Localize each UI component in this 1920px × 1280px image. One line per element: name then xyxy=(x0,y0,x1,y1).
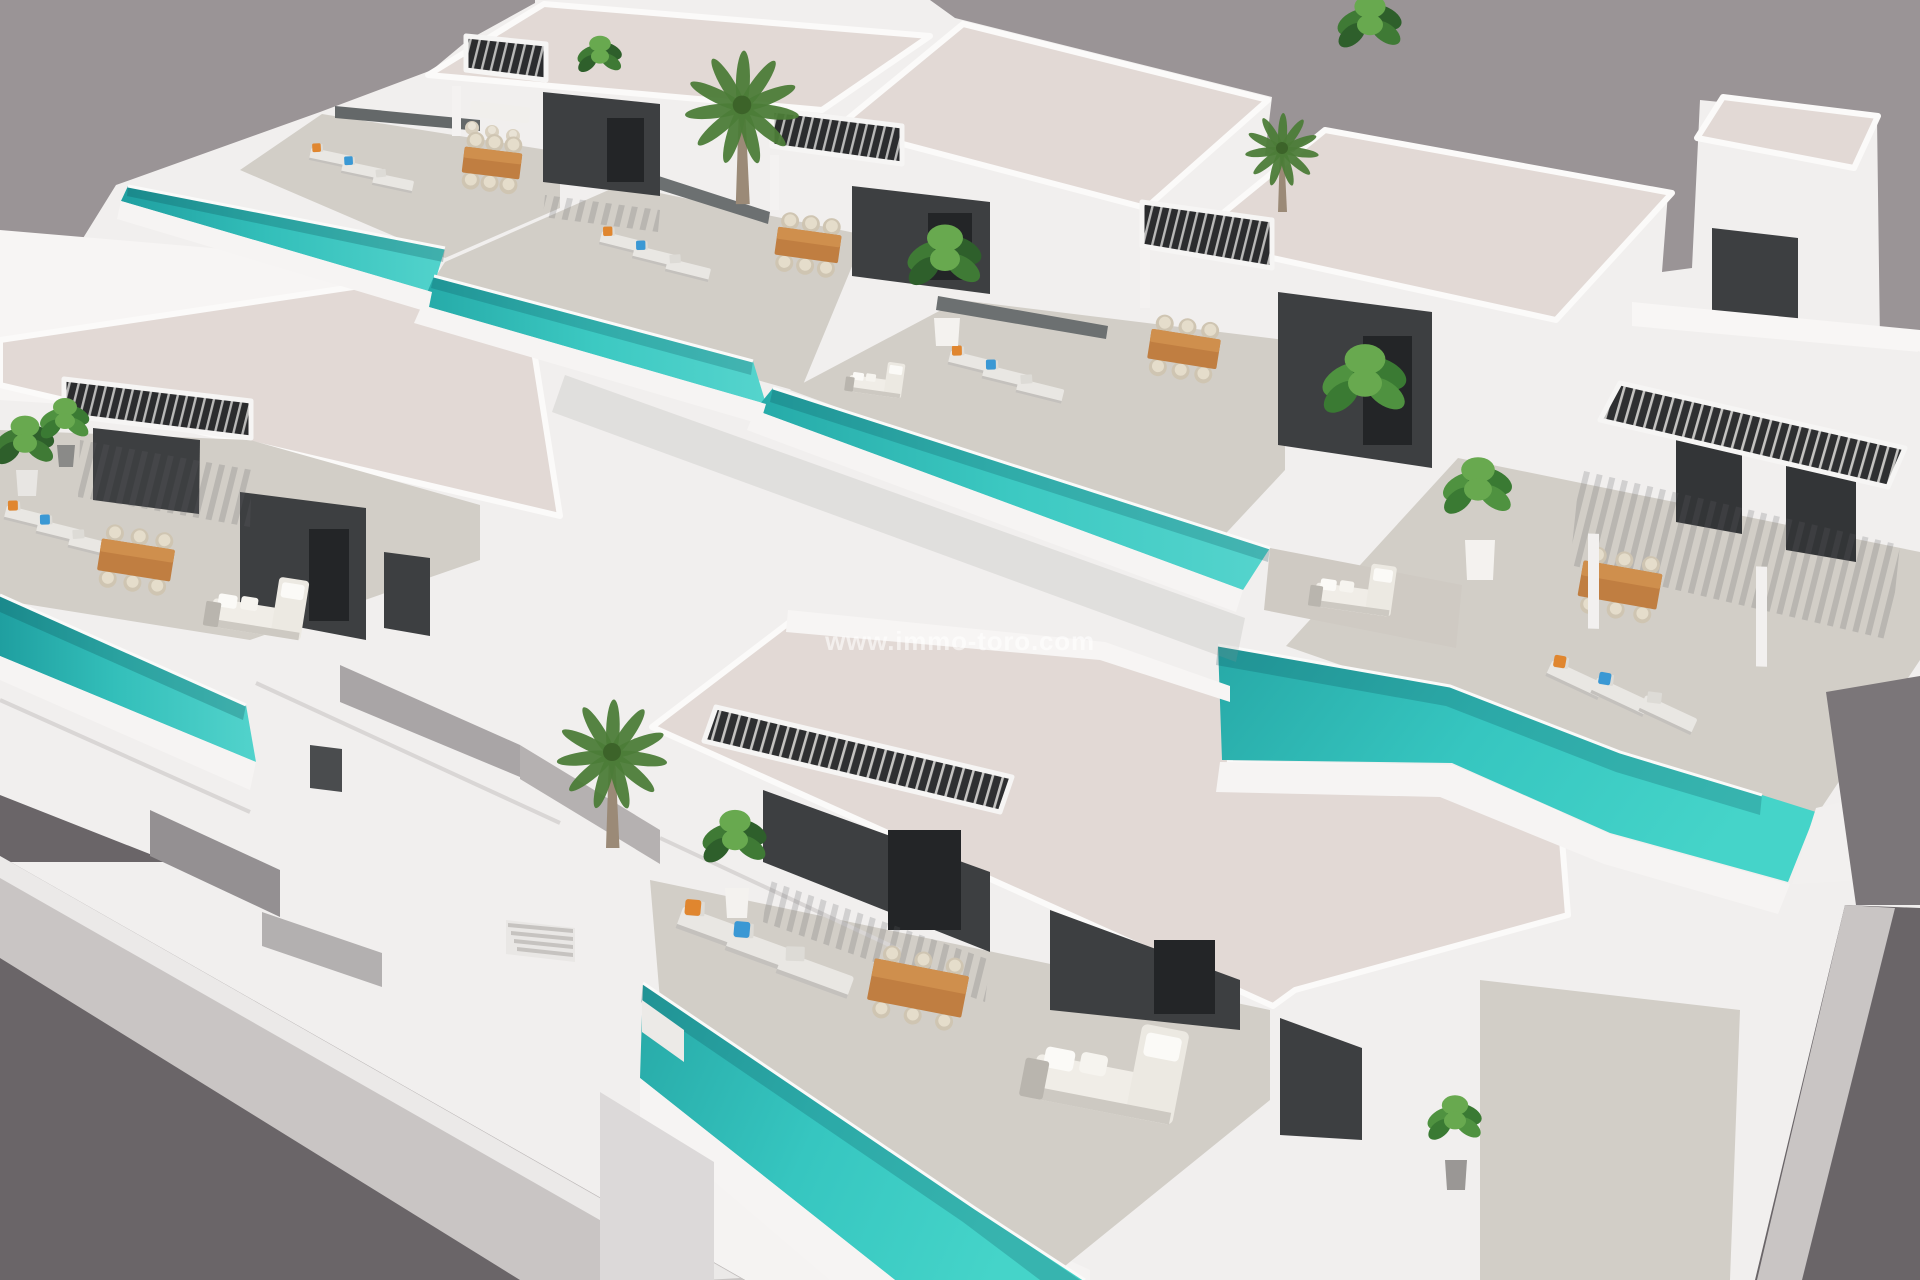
svg-text:www.immo-toro.com: www.immo-toro.com xyxy=(824,626,1095,656)
